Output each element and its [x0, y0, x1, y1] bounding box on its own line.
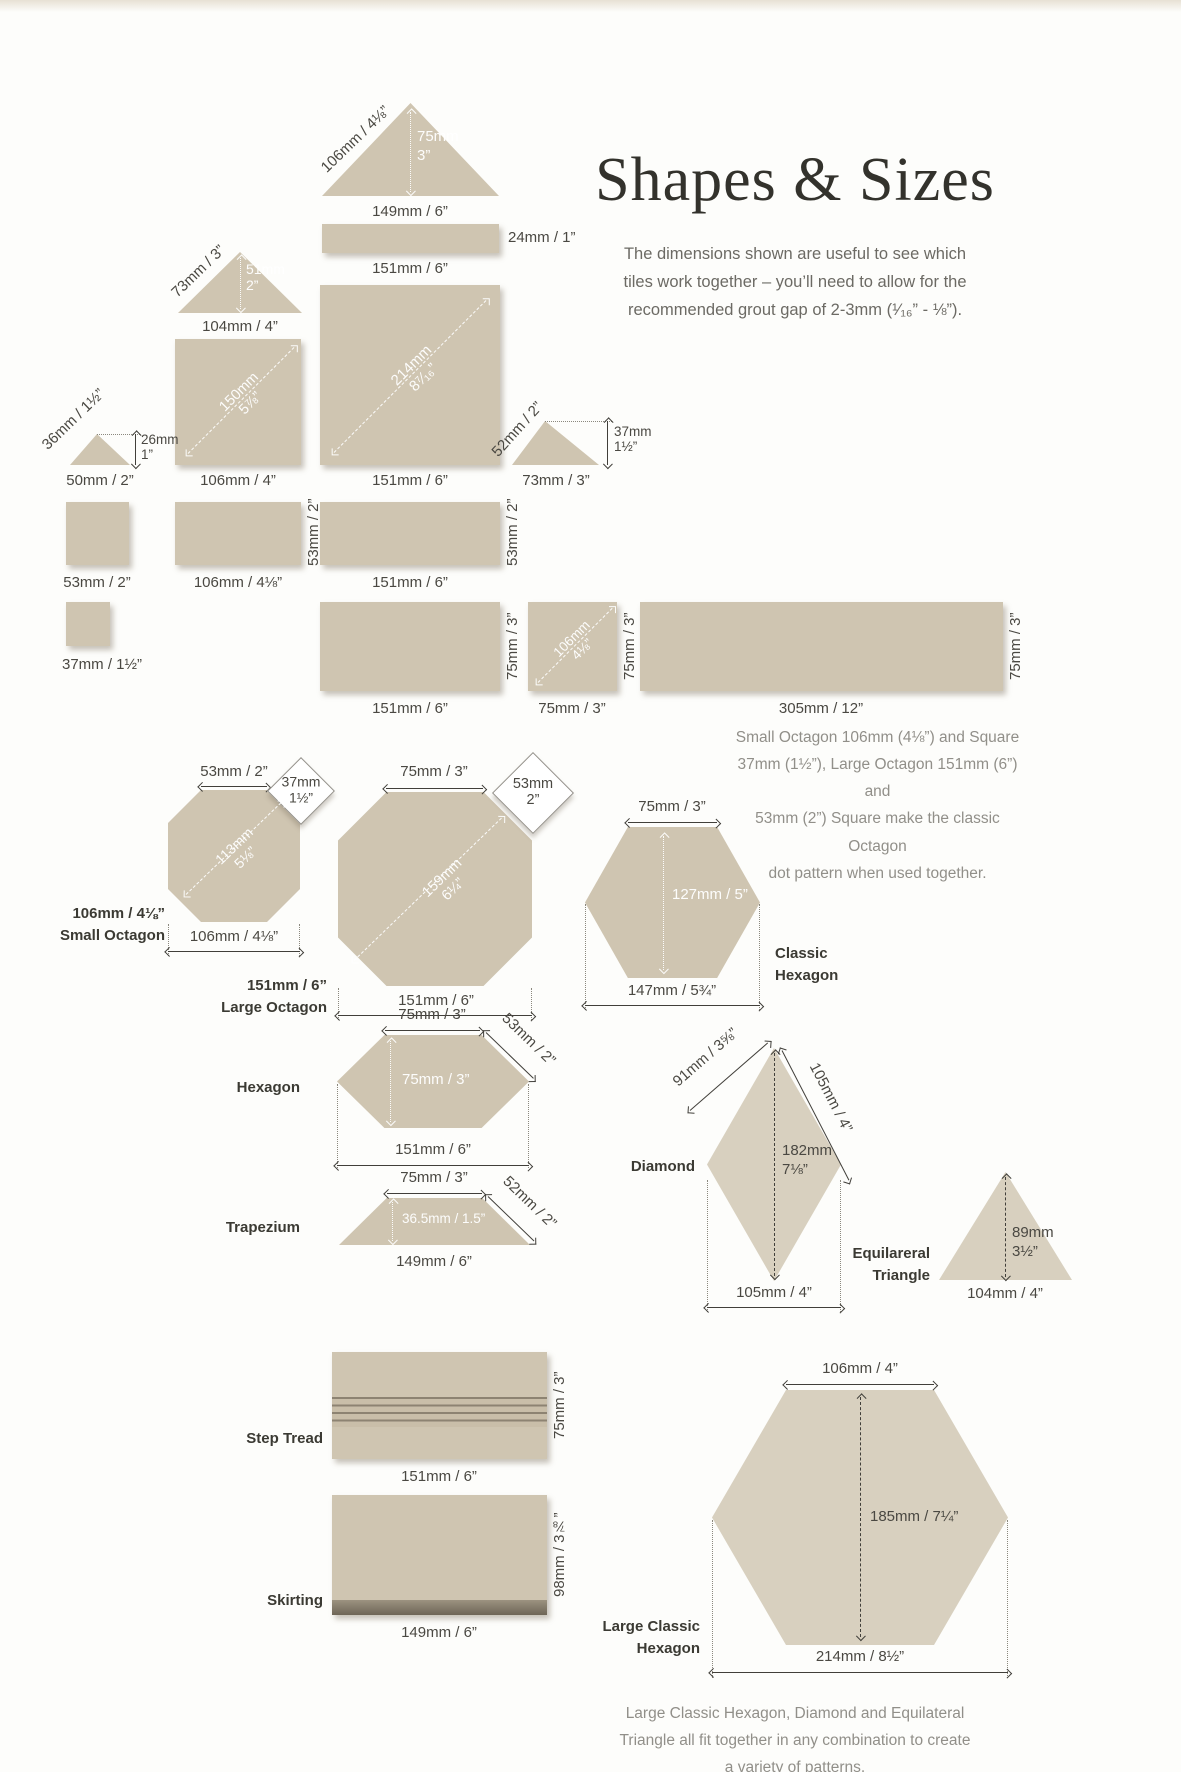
triangle-149-height-label: 75mm 3”: [417, 128, 459, 166]
diamond-guide-left: [707, 1180, 708, 1312]
skirting-base-label: 149mm / 6”: [401, 1624, 477, 1643]
octagon-dot-note: Small Octagon 106mm (4⅛”) and Square 37m…: [725, 724, 1030, 887]
tile-strip-24: [322, 224, 499, 253]
equilateral-name: Equilareral Triangle: [822, 1243, 930, 1287]
small-octagon-width-label: 106mm / 4⅛”: [190, 928, 278, 947]
diamond-left-edge-label: 91mm / 3⅝”: [670, 1025, 743, 1092]
triangle-149-base-label: 149mm / 6”: [372, 203, 448, 222]
diamond-name: Diamond: [585, 1156, 695, 1178]
large-octagon-name: 151mm / 6” Large Octagon: [185, 975, 327, 1019]
equilateral-height-arrow: [1005, 1177, 1006, 1277]
classic-hexagon-guide-right: [759, 904, 760, 1010]
small-octagon-width-arrow: [168, 951, 300, 952]
large-classic-hexagon-guide-right: [1007, 1520, 1008, 1678]
diamond-width-arrow: [707, 1307, 841, 1308]
diamond-height-arrow: [774, 1053, 775, 1276]
strip-24-base-label: 151mm / 6”: [372, 260, 448, 279]
tile-triangle-50: [70, 434, 130, 465]
large-octagon-top-label: 75mm / 3”: [400, 763, 468, 782]
page-title: Shapes & Sizes: [595, 145, 995, 216]
triangle-149-height-arrow: [410, 112, 411, 192]
shapes-and-sizes-page: Shapes & Sizes The dimensions shown are …: [0, 0, 1181, 1772]
trapezium-top-label: 75mm / 3”: [400, 1169, 468, 1188]
classic-hexagon-height-label: 127mm / 5”: [672, 886, 748, 905]
classic-hexagon-height-arrow: [663, 836, 664, 970]
square-37-base-label: 37mm / 1½”: [62, 656, 142, 675]
tile-rect-151x75: [320, 602, 500, 691]
large-classic-hexagon-top-arrow: [786, 1384, 934, 1385]
tile-rect-151x53: [320, 502, 500, 565]
large-classic-hexagon-guide-left: [712, 1520, 713, 1678]
step-tread-side-label: 75mm / 3”: [551, 1352, 568, 1459]
tile-step-tread: [332, 1352, 547, 1459]
rect-106x53-base-label: 106mm / 4⅛”: [194, 574, 282, 593]
hexagon-guide-left: [337, 1084, 338, 1168]
tile-rect-106x53: [175, 502, 301, 565]
hexagon-name: Hexagon: [190, 1077, 300, 1099]
hexagon-guide-right: [528, 1084, 529, 1168]
large-classic-hexagon-top-label: 106mm / 4”: [822, 1360, 898, 1379]
skirting-base-strip: [332, 1600, 547, 1615]
rect-305x75-base-label: 305mm / 12”: [779, 700, 863, 719]
small-octagon-top-arrow: [201, 786, 267, 787]
step-tread-ridges: [332, 1397, 547, 1427]
hexagon-height-label: 75mm / 3”: [402, 1071, 470, 1090]
large-octagon-top-arrow: [386, 788, 483, 789]
square-53-base-label: 53mm / 2”: [63, 574, 131, 593]
square-151-base-label: 151mm / 6”: [372, 472, 448, 491]
rect-151x53-base-label: 151mm / 6”: [372, 574, 448, 593]
step-tread-base-label: 151mm / 6”: [401, 1468, 477, 1487]
strip-24-height-label: 24mm / 1”: [508, 229, 576, 248]
triangle-104-height-label: 51mm 2”: [246, 262, 285, 293]
small-octagon-dot-label: 37mm 1½”: [282, 774, 321, 805]
classic-hexagon-top-label: 75mm / 3”: [638, 798, 706, 817]
hexagon-width-arrow: [337, 1165, 529, 1166]
triangle-104-height-arrow: [240, 258, 241, 309]
hexagon-width-label: 151mm / 6”: [395, 1141, 471, 1160]
step-tread-name: Step Tread: [205, 1428, 323, 1450]
skirting-name: Skirting: [205, 1590, 323, 1612]
classic-hexagon-name: Classic Hexagon: [775, 943, 885, 987]
tile-square-37: [66, 602, 110, 646]
rect-151x75-side-label: 75mm / 3”: [504, 602, 521, 691]
square-75-base-label: 75mm / 3”: [538, 700, 606, 719]
triangle-50-base-label: 50mm / 2”: [66, 472, 134, 491]
tile-square-53: [66, 502, 129, 565]
small-octagon-top-label: 53mm / 2”: [200, 763, 268, 782]
classic-hexagon-width-label: 147mm / 5¾”: [628, 982, 716, 1001]
diamond-width-label: 105mm / 4”: [736, 1284, 812, 1303]
rect-151x53-side-label: 53mm / 2”: [504, 500, 521, 566]
triangle-50-height-arrow: [135, 434, 136, 465]
rect-151x75-base-label: 151mm / 6”: [372, 700, 448, 719]
classic-hexagon-width-arrow: [585, 1005, 760, 1006]
large-classic-hexagon-height-arrow: [860, 1397, 861, 1637]
square-106-base-label: 106mm / 4”: [200, 472, 276, 491]
classic-hexagon-top-arrow: [628, 822, 717, 823]
large-classic-hexagon-width-arrow: [712, 1672, 1008, 1673]
large-octagon-dot-label: 53mm 2”: [513, 776, 553, 808]
large-classic-hexagon-width-label: 214mm / 8½”: [816, 1648, 904, 1667]
tile-skirting: [332, 1495, 547, 1615]
tile-rect-305x75: [640, 602, 1003, 691]
triangle-104-base-label: 104mm / 4”: [202, 318, 278, 337]
equilateral-base-label: 104mm / 4”: [967, 1285, 1043, 1304]
triangle-73-height-label: 37mm 1½”: [614, 424, 652, 454]
triangle-73-base-label: 73mm / 3”: [522, 472, 590, 491]
trapezium-base-label: 149mm / 6”: [396, 1253, 472, 1272]
diamond-height-label: 182mm 7⅛”: [782, 1142, 832, 1180]
trapezium-name: Trapezium: [180, 1217, 300, 1239]
large-classic-hexagon-name: Large Classic Hexagon: [575, 1616, 700, 1660]
small-octagon-name: 106mm / 4⅛” Small Octagon: [30, 903, 165, 947]
trapezium-height-label: 36.5mm / 1.5”: [402, 1211, 485, 1228]
triangle-73-height-arrow: [607, 421, 608, 465]
intro-text: The dimensions shown are useful to see w…: [605, 240, 985, 324]
trapezium-height-arrow: [392, 1202, 393, 1241]
equilateral-height-label: 89mm 3½”: [1012, 1224, 1054, 1262]
triangle-50-height-label: 26mm 1”: [141, 432, 179, 462]
triangle-73-guide-line: [545, 421, 612, 422]
classic-hexagon-guide-left: [585, 904, 586, 1010]
rect-305x75-side-label: 75mm / 3”: [1007, 602, 1024, 691]
fit-together-note: Large Classic Hexagon, Diamond and Equil…: [580, 1700, 1010, 1772]
hexagon-top-arrow: [385, 1030, 480, 1031]
hexagon-height-arrow: [390, 1041, 391, 1122]
trapezium-top-arrow: [387, 1193, 482, 1194]
hexagon-top-label: 75mm / 3”: [398, 1006, 466, 1025]
large-classic-hexagon-height-label: 185mm / 7¼”: [870, 1508, 958, 1527]
square-75-side-label: 75mm / 3”: [621, 602, 638, 691]
skirting-side-label: 98mm / 3⅞”: [551, 1495, 568, 1615]
